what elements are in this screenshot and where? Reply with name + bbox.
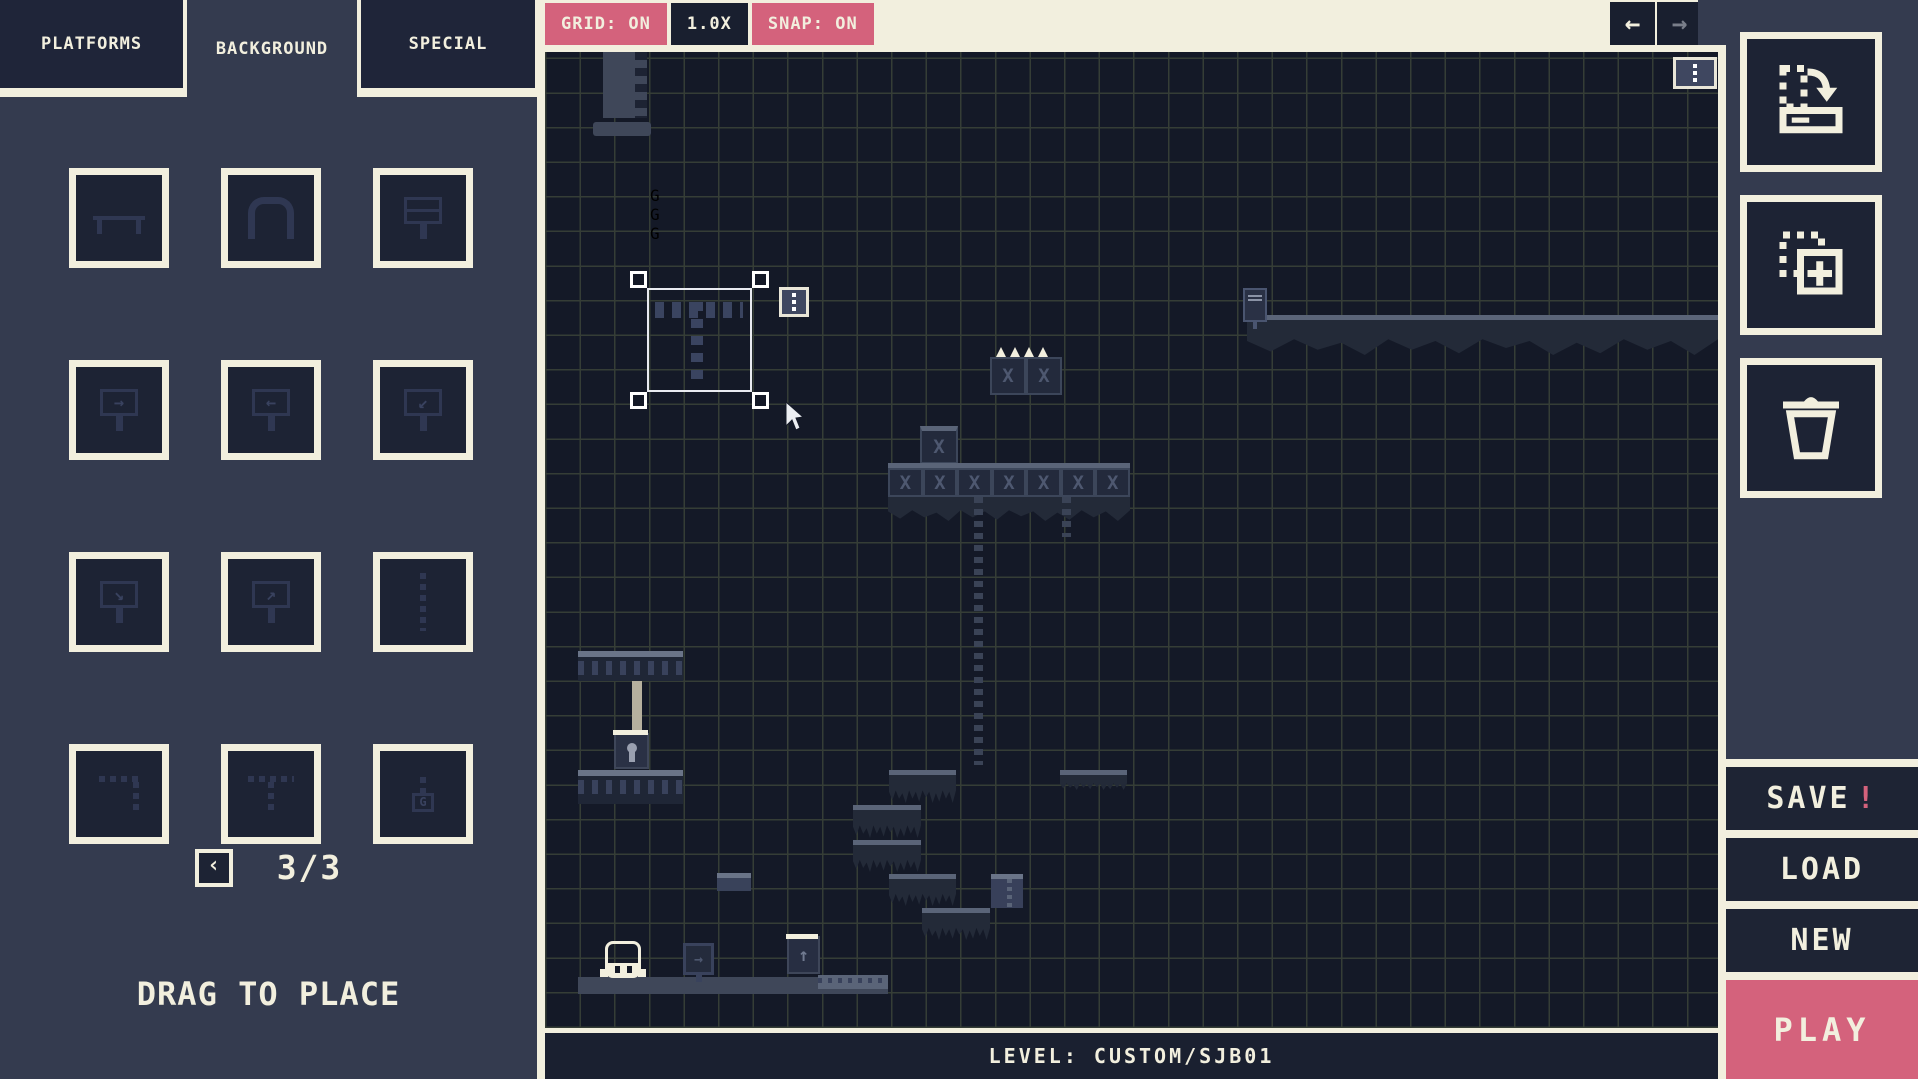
editor-toolbar: GRID: ON 1.0X SNAP: ON ← → — [545, 0, 1726, 45]
zipper-teeth — [1007, 879, 1012, 908]
load-button[interactable]: LOAD — [1726, 830, 1918, 901]
lantern-box: G — [412, 793, 434, 812]
player-eye — [627, 966, 632, 973]
undo-button[interactable]: ← — [1610, 2, 1655, 45]
tile-chain-lantern[interactable]: G — [373, 744, 473, 844]
crate-x: X — [888, 468, 923, 497]
canvas-item-bar[interactable] — [593, 122, 651, 136]
trash-icon — [1769, 384, 1853, 472]
tile-grid: →←↙↘↗G — [69, 168, 479, 844]
kebab-dot — [792, 307, 796, 311]
spike-icon — [1038, 347, 1048, 357]
level-name-label: LEVEL: CUSTOM/SJB01 — [989, 1044, 1275, 1068]
ground-top-edge — [889, 874, 956, 879]
spike-icon — [1010, 347, 1020, 357]
save-button[interactable]: SAVE ! — [1726, 759, 1918, 830]
sign-post — [116, 416, 123, 431]
page-prev-button[interactable]: ‹ — [195, 849, 233, 887]
moss-texture — [853, 810, 921, 838]
delete-object-button[interactable] — [1740, 358, 1882, 498]
sign-arrow-down-left-sprite: ↙ — [404, 389, 442, 416]
ground-top-edge — [889, 770, 956, 775]
duplicate-object-button[interactable] — [1740, 195, 1882, 335]
canvas-item-moss — [888, 497, 1130, 521]
platform-slats — [578, 780, 683, 794]
sign-post — [420, 224, 427, 239]
kebab-dot — [792, 300, 796, 304]
selection-handle[interactable] — [630, 392, 647, 409]
crate-x: X — [1026, 357, 1062, 395]
canvas-item-player[interactable] — [605, 941, 641, 978]
play-button[interactable]: PLAY — [1726, 972, 1918, 1079]
canvas-item-step — [853, 840, 921, 872]
tile-sign-arrow-down-right[interactable]: ↘ — [69, 552, 169, 652]
selection-handle[interactable] — [630, 271, 647, 288]
canvas-item-sign[interactable]: → — [683, 943, 714, 975]
tile-arch[interactable] — [221, 168, 321, 268]
ground-top-edge — [922, 908, 990, 913]
spike-icon — [1024, 347, 1034, 357]
rotate-icon — [1769, 58, 1853, 146]
canvas-menu-button[interactable] — [1673, 57, 1717, 89]
canvas-item-spike-platform[interactable]: XX — [990, 357, 1062, 395]
canvas-item-sign-small[interactable] — [1243, 288, 1267, 322]
chain-vertical-sprite — [420, 573, 426, 631]
play-label: PLAY — [1773, 1011, 1870, 1049]
tile-billboard-text[interactable] — [373, 168, 473, 268]
canvas-item-chain-v — [974, 497, 983, 765]
ground-top-edge — [853, 840, 921, 845]
gear-chip: G — [650, 224, 853, 243]
snap-toggle-button[interactable]: SNAP: ON — [752, 3, 874, 45]
kebab-dot — [1693, 64, 1697, 68]
canvas-item-step — [1060, 770, 1127, 790]
tile-sign-arrow-up-right[interactable]: ↗ — [221, 552, 321, 652]
moss-texture — [889, 775, 956, 803]
unsaved-alert: ! — [1857, 781, 1878, 816]
canvas-item-step — [889, 770, 956, 803]
moss-texture — [1060, 775, 1127, 790]
chain-t-sprite — [268, 782, 274, 812]
file-actions: SAVE ! LOAD NEW PLAY — [1726, 759, 1918, 1079]
tile-chain-vertical[interactable] — [373, 552, 473, 652]
tile-sign-arrow-right[interactable]: → — [69, 360, 169, 460]
tab-special[interactable]: SPECIAL — [361, 0, 535, 97]
zoom-level-button[interactable]: 1.0X — [671, 3, 748, 45]
selection-menu-button[interactable] — [779, 287, 809, 317]
canvas-item-long-ground[interactable] — [1247, 315, 1718, 355]
sign-post — [696, 972, 702, 982]
moss-texture — [889, 879, 956, 906]
sign-arrow-down-right-sprite: ↘ — [100, 581, 138, 608]
rotate-object-button[interactable] — [1740, 32, 1882, 172]
undo-arrow-icon: ← — [1625, 9, 1641, 39]
canvas-item-pole[interactable] — [632, 681, 642, 733]
spikes — [996, 347, 1048, 357]
palette-sidebar: PLATFORMS BACKGROUND SPECIAL →←↙↘↗G ‹ 3/… — [0, 0, 537, 1079]
gear-chip: G — [650, 186, 853, 205]
canvas-item-zipper[interactable] — [991, 874, 1023, 908]
redo-arrow-icon: → — [1672, 9, 1688, 39]
sign-post — [116, 608, 123, 623]
tile-chain-corner[interactable] — [69, 744, 169, 844]
canvas-item-launcher[interactable]: ↑ — [787, 936, 820, 974]
sign-arrow-left-sprite: ← — [252, 389, 290, 416]
tile-rail-platform[interactable] — [69, 168, 169, 268]
ground-top-edge — [853, 805, 921, 810]
mouse-cursor — [785, 402, 807, 432]
canvas-item-piston-platform[interactable] — [578, 651, 683, 681]
sign-post — [268, 416, 275, 431]
tools-sidebar: SAVE ! LOAD NEW PLAY — [1726, 0, 1918, 1079]
player-face — [608, 963, 638, 975]
kebab-dot — [1693, 78, 1697, 82]
save-label: SAVE — [1766, 781, 1850, 816]
tower-checker-edge — [635, 52, 647, 118]
gear-chip: G — [650, 205, 853, 224]
board-line — [423, 209, 439, 212]
canvas-item-keybox[interactable] — [614, 733, 649, 769]
canvas-item-crate-row[interactable]: XXXXXXX — [888, 463, 1130, 497]
tab-background[interactable]: BACKGROUND — [187, 0, 357, 97]
palette-tabs: PLATFORMS BACKGROUND SPECIAL — [0, 0, 537, 97]
launcher-cap — [786, 934, 818, 939]
tile-sign-arrow-down-left[interactable]: ↙ — [373, 360, 473, 460]
kebab-dot — [792, 293, 796, 297]
keybox-cap — [613, 730, 648, 735]
sign-post — [1253, 320, 1257, 329]
canvas-item-piston-platform[interactable] — [578, 770, 683, 804]
redo-button[interactable]: → — [1657, 2, 1702, 45]
kebab-dot — [1693, 71, 1697, 75]
canvas-item-mini-platform[interactable] — [717, 873, 751, 891]
level-canvas[interactable]: GGGXXXXXXXXXX→↑ — [545, 52, 1718, 1028]
chain-lantern-sprite — [420, 777, 426, 793]
ground-top-edge — [1060, 770, 1127, 775]
editor-center: GRID: ON 1.0X SNAP: ON ← → GGGXXXXXXXXXX… — [537, 0, 1726, 1079]
canvas-item-tower[interactable] — [603, 52, 647, 118]
palette-pagination: ‹ 3/3 — [0, 848, 537, 887]
player-eye — [615, 966, 620, 973]
keyhole-stem — [629, 750, 635, 762]
player-foot — [638, 969, 646, 977]
board-line — [407, 209, 423, 212]
moss-texture — [1247, 320, 1718, 355]
tab-platforms[interactable]: PLATFORMS — [0, 0, 183, 97]
crate-x: X — [990, 357, 1026, 395]
drag-hint: DRAG TO PLACE — [0, 975, 537, 1013]
selected-chain-t-sprite — [691, 302, 703, 386]
new-button[interactable]: NEW — [1726, 901, 1918, 972]
sign-arrow-up-right-sprite: ↗ — [252, 581, 290, 608]
sign-post — [268, 608, 275, 623]
level-editor-app: PLATFORMS BACKGROUND SPECIAL →←↙↘↗G ‹ 3/… — [0, 0, 1918, 1079]
grid-toggle-button[interactable]: GRID: ON — [545, 3, 667, 45]
ground-top-edge — [1247, 315, 1718, 320]
moss-texture — [922, 913, 990, 940]
chain-corner-sprite — [133, 782, 139, 812]
canvas-item-ground-light[interactable] — [818, 975, 888, 989]
selection-handle[interactable] — [752, 271, 769, 288]
ground-dashes — [818, 978, 888, 983]
canvas-item-dotted-platform[interactable]: GGG — [650, 186, 853, 222]
toolbar-gap — [1698, 0, 1726, 45]
canvas-item-crate[interactable]: X — [920, 426, 958, 464]
player-foot — [600, 969, 608, 977]
canvas-item-step — [853, 805, 921, 838]
spike-icon — [996, 347, 1006, 357]
selection-handle[interactable] — [752, 392, 769, 409]
crate-x: X — [923, 468, 958, 497]
bench-sprite — [93, 216, 145, 220]
crate-x: X — [957, 468, 992, 497]
canvas-item-step — [889, 874, 956, 906]
crate-x: X — [1095, 468, 1130, 497]
sign-text-line — [1248, 295, 1262, 297]
billboard-sprite — [404, 197, 442, 224]
sign-text-line — [1248, 299, 1262, 301]
arch-sprite — [248, 197, 294, 239]
crate-x: X — [1061, 468, 1096, 497]
status-bar: LEVEL: CUSTOM/SJB01 — [545, 1033, 1718, 1079]
load-label: LOAD — [1780, 852, 1864, 887]
tile-chain-t[interactable] — [221, 744, 321, 844]
moss-texture — [853, 845, 921, 872]
duplicate-icon — [1769, 221, 1853, 309]
crate-x: X — [992, 468, 1027, 497]
canvas-item-step — [922, 908, 990, 940]
crate-x: X — [1026, 468, 1061, 497]
canvas-item-chain-v — [1062, 497, 1071, 537]
canvas-item-selection[interactable] — [647, 288, 752, 392]
sign-post — [420, 416, 427, 431]
page-indicator: 3/3 — [277, 848, 343, 887]
sign-arrow-right-sprite: → — [100, 389, 138, 416]
new-label: NEW — [1790, 923, 1853, 958]
tile-sign-arrow-left[interactable]: ← — [221, 360, 321, 460]
platform-slats — [578, 661, 683, 675]
